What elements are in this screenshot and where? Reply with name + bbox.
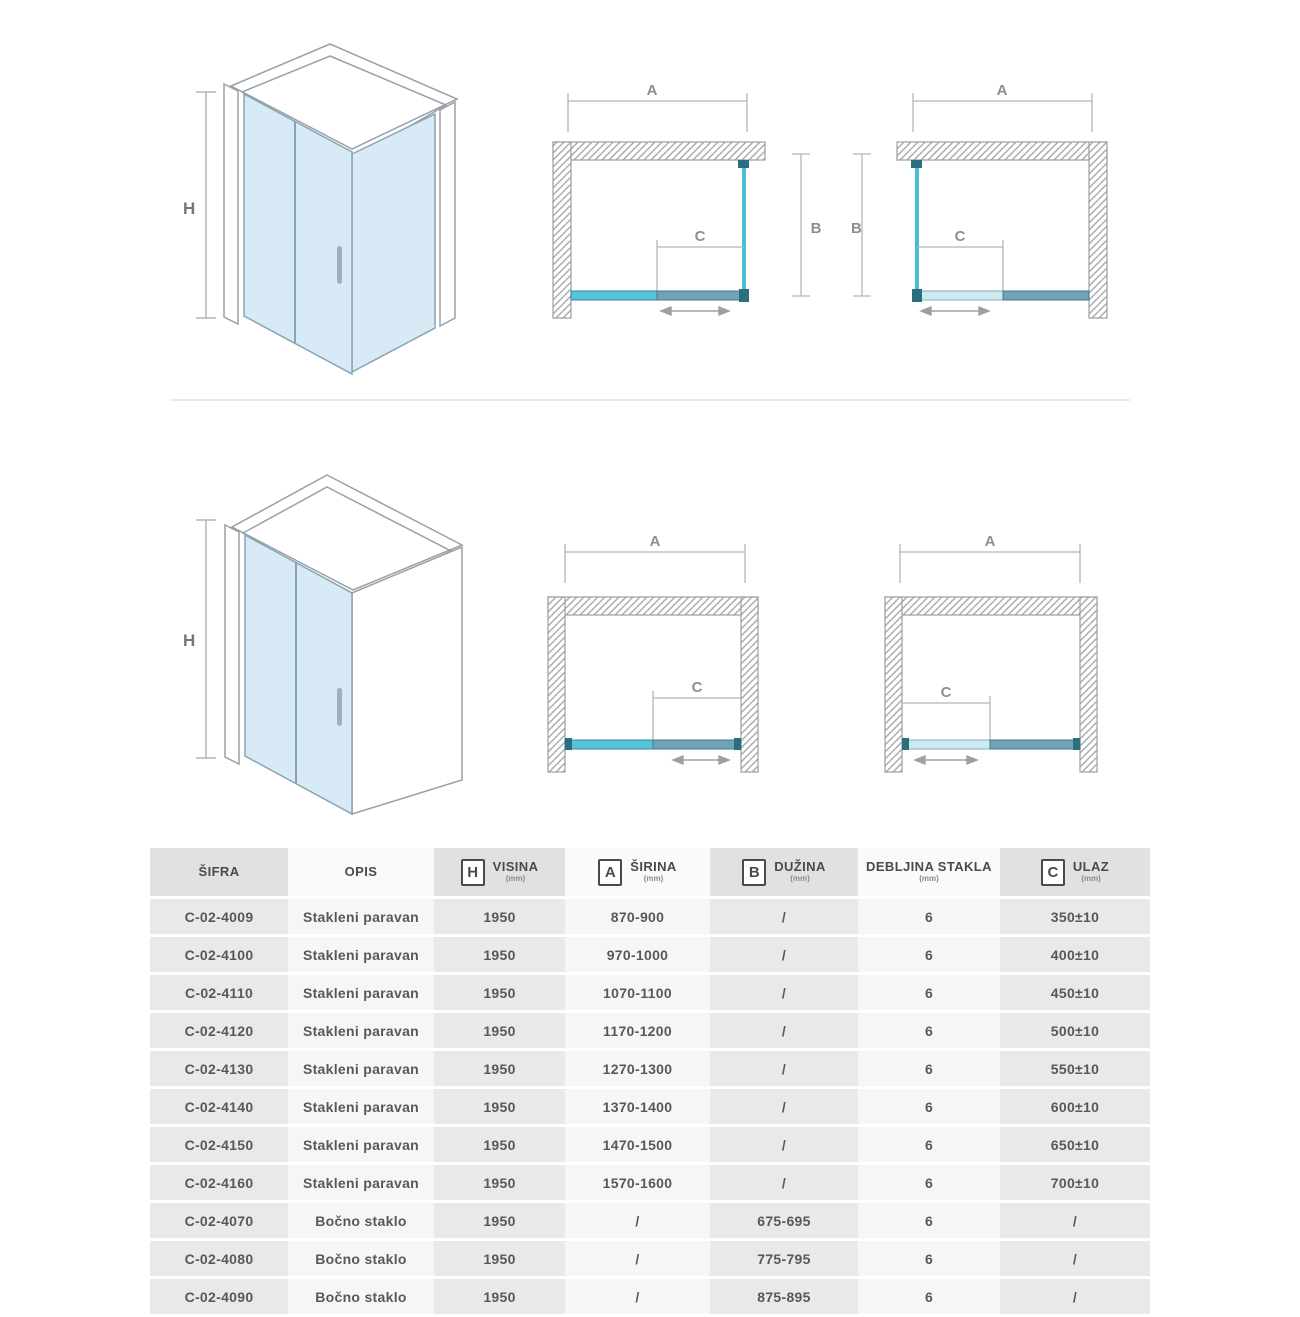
table-cell: Bočno staklo: [288, 1202, 434, 1240]
table-cell: Stakleni paravan: [288, 1164, 434, 1202]
table-cell: 6: [858, 1088, 1000, 1126]
table-cell: 700±10: [1000, 1164, 1150, 1202]
door-end-bracket: [902, 738, 909, 750]
table-cell: 1950: [434, 1164, 565, 1202]
column-header-ulaz: C ULAZ(mm): [1000, 848, 1150, 898]
table-cell: 775-795: [710, 1240, 858, 1278]
fixed-glass-segment: [565, 740, 653, 749]
dimension-label-a: A: [647, 82, 658, 99]
table-cell: /: [710, 936, 858, 974]
plan-view-alcove-entry-left: A C: [865, 520, 1155, 800]
entry-dimension-c: [657, 240, 744, 294]
table-cell: C-02-4009: [150, 898, 288, 936]
side-glass-panel: [352, 114, 435, 372]
fixed-glass-segment: [571, 291, 657, 300]
right-wall: [1080, 597, 1097, 772]
door-end-bracket: [734, 738, 741, 750]
table-cell: 6: [858, 1278, 1000, 1316]
table-row: C-02-4150Stakleni paravan19501470-1500/6…: [150, 1126, 1150, 1164]
table-cell: 1370-1400: [565, 1088, 710, 1126]
sliding-glass-segment: [653, 740, 741, 749]
table-cell: 675-695: [710, 1202, 858, 1240]
table-cell: C-02-4120: [150, 1012, 288, 1050]
column-header-duzina: B DUŽINA(mm): [710, 848, 858, 898]
table-cell: Stakleni paravan: [288, 1050, 434, 1088]
table-cell: Stakleni paravan: [288, 1088, 434, 1126]
table-cell: 1470-1500: [565, 1126, 710, 1164]
dimension-label-c: C: [955, 228, 966, 245]
entry-dimension-c: [653, 691, 741, 743]
table-cell: C-02-4140: [150, 1088, 288, 1126]
table-cell: C-02-4130: [150, 1050, 288, 1088]
door-handle: [337, 688, 342, 726]
table-cell: 6: [858, 1126, 1000, 1164]
table-cell: 450±10: [1000, 974, 1150, 1012]
table-cell: 1950: [434, 1240, 565, 1278]
door-end-bracket: [565, 738, 572, 750]
table-cell: 1950: [434, 1012, 565, 1050]
table-cell: Stakleni paravan: [288, 1126, 434, 1164]
glass-wall-bracket: [911, 160, 922, 168]
table-cell: Stakleni paravan: [288, 936, 434, 974]
table-row: C-02-4120Stakleni paravan19501170-1200/6…: [150, 1012, 1150, 1050]
table-cell: 6: [858, 974, 1000, 1012]
table-row: C-02-4009Stakleni paravan1950870-900/635…: [150, 898, 1150, 936]
table-cell: 1950: [434, 1202, 565, 1240]
left-wall-profile: [225, 525, 239, 764]
right-wall-profile: [440, 102, 455, 326]
table-cell: Bočno staklo: [288, 1278, 434, 1316]
table-cell: 500±10: [1000, 1012, 1150, 1050]
slide-direction-arrow: [915, 756, 977, 764]
table-cell: 650±10: [1000, 1126, 1150, 1164]
table-cell: Stakleni paravan: [288, 1012, 434, 1050]
table-cell: 970-1000: [565, 936, 710, 974]
table-cell: 1570-1600: [565, 1164, 710, 1202]
top-wall: [548, 597, 758, 615]
table-cell: 6: [858, 1050, 1000, 1088]
slide-direction-arrow: [661, 307, 729, 315]
table-row: C-02-4160Stakleni paravan19501570-1600/6…: [150, 1164, 1150, 1202]
sliding-glass-segment: [902, 740, 990, 749]
left-wall: [885, 597, 902, 772]
depth-dimension-b: [792, 154, 810, 296]
column-header-debljina-stakla: DEBLJINA STAKLA(mm): [858, 848, 1000, 898]
dimension-label-a: A: [650, 533, 661, 550]
width-dimension-a: [568, 93, 747, 132]
table-cell: 6: [858, 1240, 1000, 1278]
table-row: C-02-4100Stakleni paravan1950970-1000/64…: [150, 936, 1150, 974]
c-dimension-icon: C: [1041, 859, 1065, 886]
table-cell: 550±10: [1000, 1050, 1150, 1088]
sliding-glass-segment: [657, 291, 744, 300]
table-cell: /: [710, 1088, 858, 1126]
dimension-label-b: B: [811, 220, 822, 237]
table-cell: /: [565, 1202, 710, 1240]
table-cell: 1950: [434, 936, 565, 974]
dimension-label-c: C: [941, 684, 952, 701]
table-cell: Stakleni paravan: [288, 974, 434, 1012]
column-header-visina: H VISINA(mm): [434, 848, 565, 898]
table-cell: /: [710, 1050, 858, 1088]
dimension-label-a: A: [997, 82, 1008, 99]
table-cell: 1950: [434, 1050, 565, 1088]
column-header-opis: OPIS: [288, 848, 434, 898]
a-dimension-icon: A: [598, 859, 622, 886]
door-end-bracket: [1073, 738, 1080, 750]
dimension-label-a: A: [985, 533, 996, 550]
left-wall: [548, 597, 565, 772]
table-cell: C-02-4070: [150, 1202, 288, 1240]
height-dimension: [196, 520, 216, 758]
table-cell: Stakleni paravan: [288, 898, 434, 936]
table-cell: 875-895: [710, 1278, 858, 1316]
table-cell: 870-900: [565, 898, 710, 936]
slide-direction-arrow: [921, 307, 989, 315]
door-handle: [337, 246, 342, 284]
table-cell: 6: [858, 936, 1000, 974]
table-cell: 1950: [434, 1126, 565, 1164]
table-row: C-02-4110Stakleni paravan19501070-1100/6…: [150, 974, 1150, 1012]
table-row: C-02-4070Bočno staklo1950/675-6956/: [150, 1202, 1150, 1240]
left-wall: [553, 142, 571, 318]
table-row: C-02-4140Stakleni paravan19501370-1400/6…: [150, 1088, 1150, 1126]
b-dimension-icon: B: [742, 859, 766, 886]
table-row: C-02-4090Bočno staklo1950/875-8956/: [150, 1278, 1150, 1316]
dimension-label-b: B: [851, 220, 862, 237]
table-cell: /: [565, 1278, 710, 1316]
table-cell: /: [710, 1126, 858, 1164]
separator-line: [170, 399, 1130, 401]
isometric-view-with-side-glass: H: [150, 28, 490, 383]
door-end-bracket: [912, 289, 922, 302]
column-header-sirina: A ŠIRINA(mm): [565, 848, 710, 898]
table-cell: /: [1000, 1240, 1150, 1278]
plan-view-alcove-entry-right: A C: [535, 520, 825, 800]
column-header-sifra: ŠIFRA: [150, 848, 288, 898]
side-wall-panel: [352, 547, 462, 814]
fixed-glass-segment: [990, 740, 1080, 749]
isometric-view-alcove: H: [150, 462, 500, 832]
sliding-glass-segment: [917, 291, 1003, 300]
right-wall: [1089, 142, 1107, 318]
table-cell: 1170-1200: [565, 1012, 710, 1050]
entry-dimension-c: [902, 696, 990, 743]
table-cell: 1950: [434, 1088, 565, 1126]
table-cell: 350±10: [1000, 898, 1150, 936]
top-wall: [897, 142, 1107, 160]
dimension-label-c: C: [695, 228, 706, 245]
top-wall: [885, 597, 1097, 615]
table-cell: C-02-4100: [150, 936, 288, 974]
table-cell: C-02-4090: [150, 1278, 288, 1316]
table-cell: /: [710, 974, 858, 1012]
table-cell: 6: [858, 1202, 1000, 1240]
table-cell: 6: [858, 1012, 1000, 1050]
table-cell: /: [710, 1164, 858, 1202]
table-cell: 1950: [434, 898, 565, 936]
table-cell: 1270-1300: [565, 1050, 710, 1088]
spec-sheet-page: { "labels": { "h": "H", "a": "A", "b": "…: [0, 0, 1300, 1300]
plan-view-corner-right-wall: A B C: [845, 75, 1135, 340]
left-wall-profile: [224, 84, 238, 324]
table-cell: 6: [858, 1164, 1000, 1202]
h-dimension-icon: H: [461, 859, 485, 886]
table-cell: 600±10: [1000, 1088, 1150, 1126]
table-cell: C-02-4110: [150, 974, 288, 1012]
table-cell: Bočno staklo: [288, 1240, 434, 1278]
spec-table: ŠIFRA OPIS H VISINA(mm) A ŠIRINA(mm): [150, 848, 1150, 1317]
table-cell: 1950: [434, 1278, 565, 1316]
table-cell: C-02-4160: [150, 1164, 288, 1202]
table-cell: 1070-1100: [565, 974, 710, 1012]
slide-direction-arrow: [673, 756, 729, 764]
height-dimension: [196, 92, 216, 318]
top-wall: [553, 142, 765, 160]
dimension-label-c: C: [692, 679, 703, 696]
table-cell: 1950: [434, 974, 565, 1012]
right-wall: [741, 597, 758, 772]
table-cell: /: [710, 898, 858, 936]
table-row: C-02-4130Stakleni paravan19501270-1300/6…: [150, 1050, 1150, 1088]
table-cell: 6: [858, 898, 1000, 936]
table-cell: /: [1000, 1202, 1150, 1240]
dimension-label-h: H: [183, 631, 195, 650]
spec-table-container: ŠIFRA OPIS H VISINA(mm) A ŠIRINA(mm): [150, 848, 1150, 1317]
table-row: C-02-4080Bočno staklo1950/775-7956/: [150, 1240, 1150, 1278]
entry-dimension-c: [917, 240, 1003, 294]
table-cell: /: [1000, 1278, 1150, 1316]
spec-table-header: ŠIFRA OPIS H VISINA(mm) A ŠIRINA(mm): [150, 848, 1150, 898]
fixed-glass-segment: [1003, 291, 1089, 300]
spec-table-body: C-02-4009Stakleni paravan1950870-900/635…: [150, 898, 1150, 1316]
table-cell: 400±10: [1000, 936, 1150, 974]
table-cell: /: [710, 1012, 858, 1050]
glass-wall-bracket: [738, 160, 749, 168]
door-end-bracket: [739, 289, 749, 302]
dimension-label-h: H: [183, 199, 195, 218]
table-cell: /: [565, 1240, 710, 1278]
plan-view-corner-left-wall: A B C: [540, 75, 830, 340]
table-cell: C-02-4150: [150, 1126, 288, 1164]
table-cell: C-02-4080: [150, 1240, 288, 1278]
